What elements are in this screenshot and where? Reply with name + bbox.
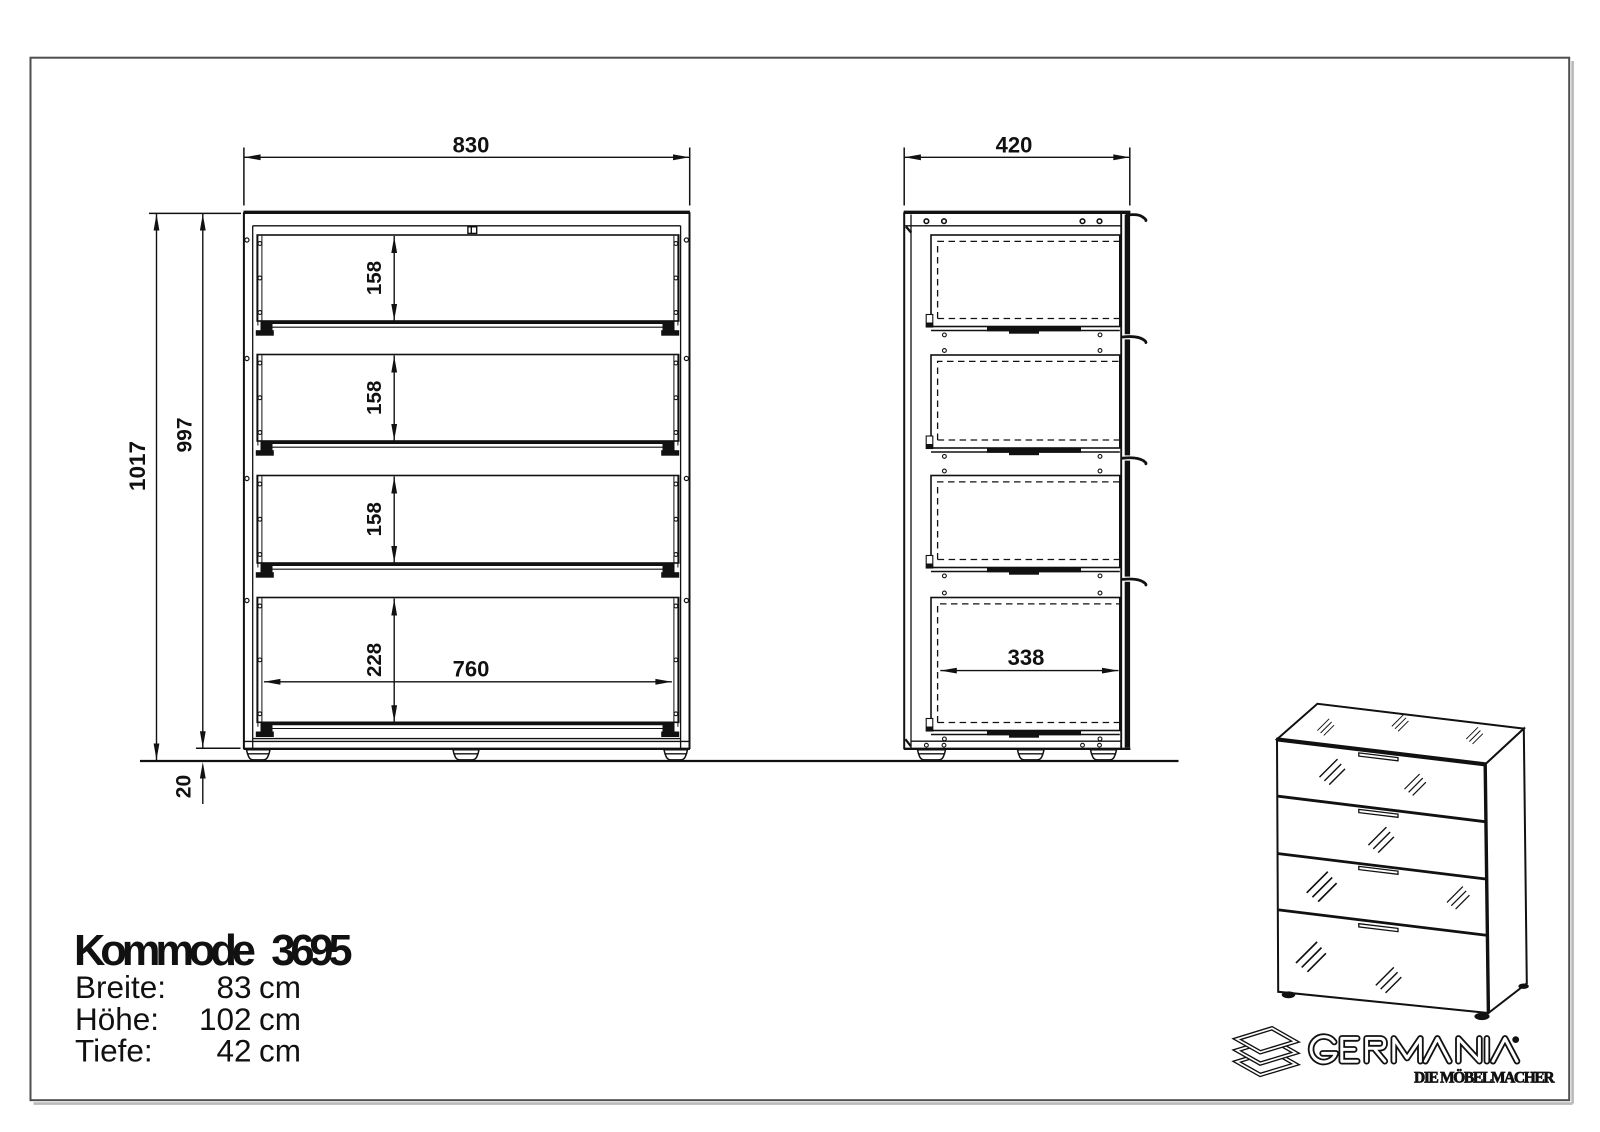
svg-text:338: 338 <box>1008 645 1045 670</box>
svg-text:Kommode: Kommode <box>74 927 256 975</box>
svg-text:42: 42 <box>216 1032 251 1068</box>
svg-text:158: 158 <box>363 261 386 295</box>
svg-text:3695: 3695 <box>271 927 352 975</box>
svg-text:20: 20 <box>173 775 196 798</box>
svg-text:228: 228 <box>363 643 386 677</box>
svg-text:Breite:: Breite: <box>75 969 166 1005</box>
svg-text:Tiefe:: Tiefe: <box>75 1032 153 1068</box>
svg-text:1017: 1017 <box>125 441 150 491</box>
svg-text:158: 158 <box>363 502 386 536</box>
svg-text:cm: cm <box>259 969 301 1005</box>
svg-text:997: 997 <box>174 417 197 452</box>
svg-text:830: 830 <box>453 133 490 158</box>
svg-text:158: 158 <box>363 381 386 415</box>
svg-text:DIE MÖBELMACHER: DIE MÖBELMACHER <box>1414 1070 1555 1087</box>
svg-text:760: 760 <box>453 657 490 682</box>
svg-text:cm: cm <box>259 1032 301 1068</box>
svg-text:83: 83 <box>216 969 251 1005</box>
svg-text:420: 420 <box>996 133 1033 158</box>
